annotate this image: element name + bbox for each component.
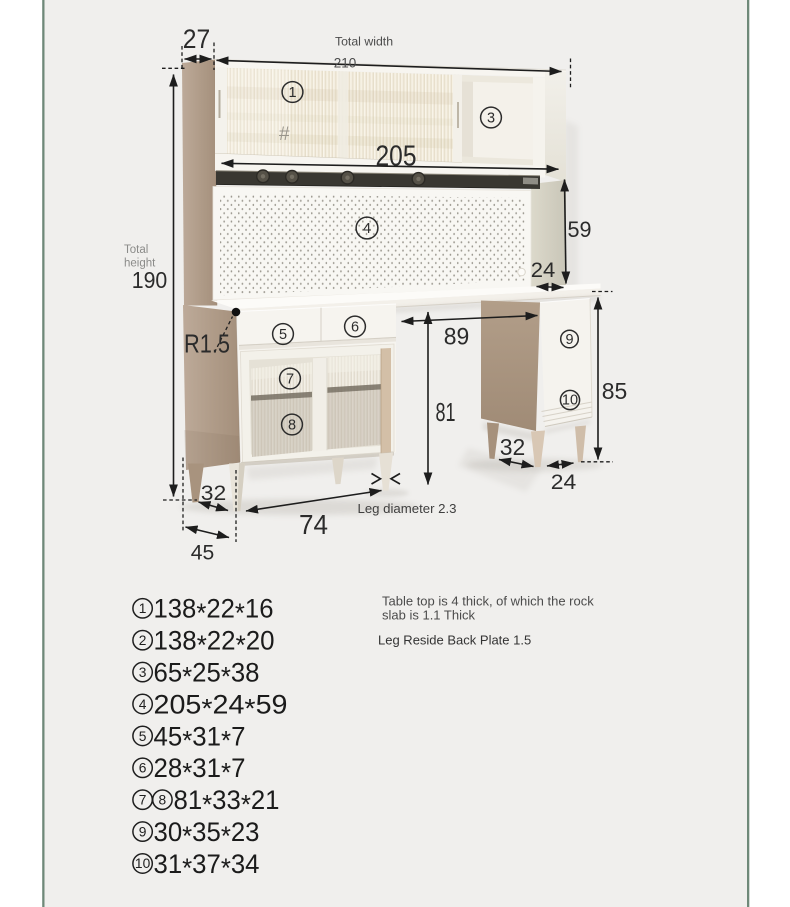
svg-text:89: 89	[444, 324, 470, 351]
svg-text:7: 7	[286, 372, 294, 388]
svg-text:2: 2	[139, 633, 147, 648]
svg-text:7: 7	[139, 793, 147, 808]
svg-text:#: #	[279, 124, 290, 145]
svg-text:190: 190	[132, 267, 168, 293]
svg-text:Total width: Total width	[335, 35, 393, 49]
svg-text:6: 6	[351, 320, 359, 336]
svg-text:4: 4	[363, 221, 371, 237]
svg-text:5: 5	[139, 729, 147, 744]
svg-text:81*33*21: 81*33*21	[174, 785, 280, 819]
svg-text:59: 59	[568, 217, 592, 242]
svg-text:9: 9	[139, 825, 147, 840]
svg-text:1: 1	[139, 601, 147, 616]
svg-text:6: 6	[139, 761, 147, 776]
svg-text:10: 10	[135, 856, 151, 871]
svg-text:Leg diameter 2.3: Leg diameter 2.3	[358, 501, 457, 516]
svg-text:Table top is 4 thick, of which: Table top is 4 thick, of which the rock	[382, 594, 594, 609]
svg-text:138*22*20: 138*22*20	[154, 626, 275, 660]
svg-text:65*25*38: 65*25*38	[154, 658, 260, 692]
svg-text:3: 3	[487, 111, 495, 127]
svg-text:138*22*16: 138*22*16	[154, 594, 274, 628]
svg-text:45*31*7: 45*31*7	[154, 721, 246, 755]
svg-text:slab is 1.1 Thick: slab is 1.1 Thick	[382, 608, 475, 623]
svg-text:Total: Total	[124, 244, 148, 256]
svg-text:31*37*34: 31*37*34	[154, 849, 260, 883]
svg-text:24: 24	[531, 259, 556, 282]
svg-text:3: 3	[139, 665, 147, 680]
svg-text:8: 8	[159, 793, 167, 808]
svg-text:30*35*23: 30*35*23	[154, 817, 260, 851]
svg-text:27: 27	[183, 24, 211, 54]
svg-text:9: 9	[565, 332, 573, 348]
svg-text:1: 1	[288, 85, 296, 101]
svg-text:R1.5: R1.5	[184, 329, 230, 359]
svg-text:205*24*59: 205*24*59	[154, 689, 288, 723]
svg-text:32: 32	[500, 434, 526, 460]
svg-text:8: 8	[288, 418, 296, 434]
svg-text:32: 32	[201, 481, 227, 505]
svg-text:85: 85	[602, 378, 628, 404]
svg-text:5: 5	[279, 327, 287, 343]
svg-text:Leg Reside Back Plate 1.5: Leg Reside Back Plate 1.5	[378, 633, 531, 648]
svg-text:10: 10	[562, 392, 578, 408]
svg-text:210: 210	[334, 56, 357, 71]
svg-text:81: 81	[436, 397, 456, 427]
svg-text:24: 24	[551, 470, 577, 494]
svg-text:4: 4	[139, 697, 147, 712]
svg-text:74: 74	[299, 509, 328, 540]
svg-text:45: 45	[191, 541, 215, 565]
svg-text:205: 205	[376, 141, 417, 173]
svg-text:28*31*7: 28*31*7	[154, 753, 246, 787]
